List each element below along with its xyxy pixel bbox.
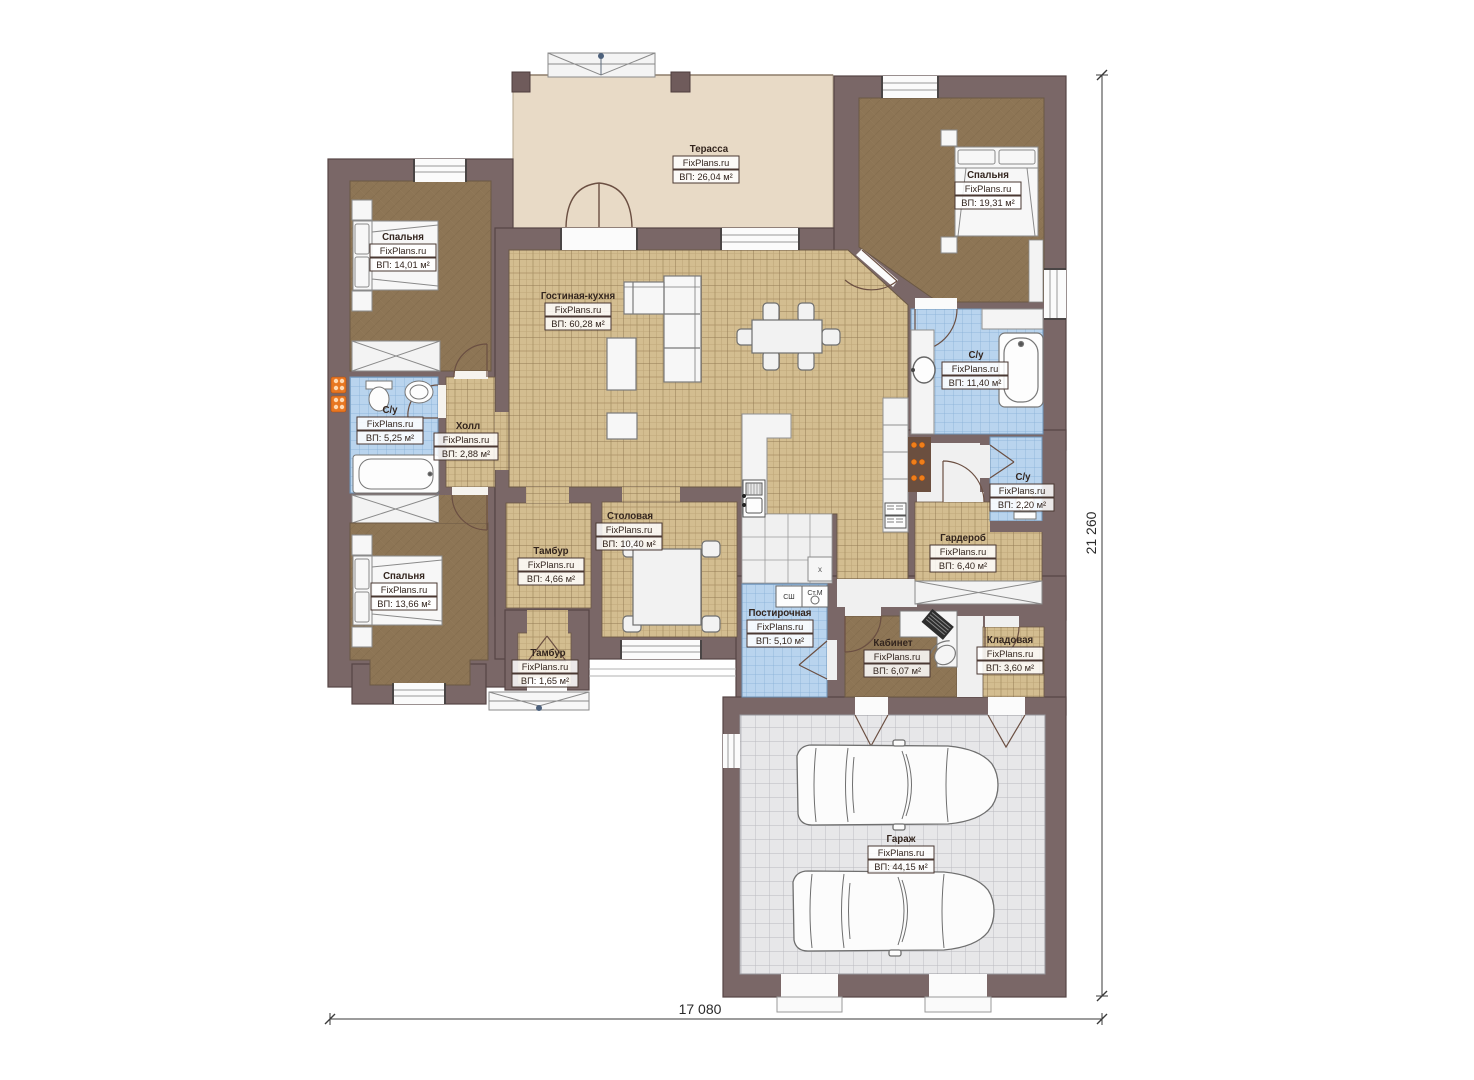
svg-text:FixPlans.ru: FixPlans.ru [555, 305, 602, 315]
svg-text:FixPlans.ru: FixPlans.ru [952, 364, 999, 374]
svg-text:FixPlans.ru: FixPlans.ru [367, 419, 414, 429]
svg-text:ВП: 4,66 м²: ВП: 4,66 м² [527, 574, 575, 584]
svg-text:ВП: 5,25 м²: ВП: 5,25 м² [366, 433, 414, 443]
svg-text:Спальня: Спальня [967, 170, 1009, 181]
svg-text:ВП: 3,60 м²: ВП: 3,60 м² [986, 663, 1034, 673]
svg-text:Гараж: Гараж [887, 834, 916, 845]
svg-text:ВП: 14,01 м²: ВП: 14,01 м² [376, 260, 429, 270]
svg-text:ВП: 5,10 м²: ВП: 5,10 м² [756, 636, 804, 646]
svg-text:Гостиная-кухня: Гостиная-кухня [541, 291, 615, 302]
svg-text:ВП: 6,40 м²: ВП: 6,40 м² [939, 561, 987, 571]
svg-text:FixPlans.ru: FixPlans.ru [878, 848, 925, 858]
svg-text:ВП: 6,07 м²: ВП: 6,07 м² [873, 666, 921, 676]
svg-text:Гардероб: Гардероб [940, 533, 986, 544]
svg-text:x: x [818, 565, 822, 574]
svg-text:СШ: СШ [783, 594, 794, 601]
svg-text:ВП: 2,88 м²: ВП: 2,88 м² [442, 449, 490, 459]
svg-text:FixPlans.ru: FixPlans.ru [999, 486, 1046, 496]
svg-text:ВП: 44,15 м²: ВП: 44,15 м² [874, 862, 927, 872]
svg-text:ВП: 26,04 м²: ВП: 26,04 м² [679, 172, 732, 182]
svg-text:FixPlans.ru: FixPlans.ru [965, 184, 1012, 194]
svg-text:С/у: С/у [1015, 472, 1031, 483]
svg-text:Терасса: Терасса [690, 144, 729, 155]
svg-text:ВП: 1,65 м²: ВП: 1,65 м² [521, 676, 569, 686]
svg-text:Кабинет: Кабинет [873, 638, 912, 649]
svg-text:FixPlans.ru: FixPlans.ru [443, 435, 490, 445]
svg-text:21 260: 21 260 [1083, 511, 1099, 554]
svg-text:Тамбур: Тамбур [533, 546, 568, 557]
svg-text:FixPlans.ru: FixPlans.ru [940, 547, 987, 557]
svg-text:ВП: 19,31 м²: ВП: 19,31 м² [961, 198, 1014, 208]
svg-text:Холл: Холл [456, 421, 480, 432]
svg-text:FixPlans.ru: FixPlans.ru [522, 662, 569, 672]
svg-text:Кладовая: Кладовая [987, 635, 1033, 646]
svg-text:С/у: С/у [968, 350, 984, 361]
svg-text:17 080: 17 080 [679, 1001, 722, 1017]
svg-text:С/у: С/у [382, 405, 398, 416]
svg-text:FixPlans.ru: FixPlans.ru [683, 158, 730, 168]
svg-text:Ст.М: Ст.М [807, 590, 822, 597]
svg-text:ВП: 2,20 м²: ВП: 2,20 м² [998, 500, 1046, 510]
svg-text:FixPlans.ru: FixPlans.ru [987, 649, 1034, 659]
svg-text:ВП: 11,40 м²: ВП: 11,40 м² [949, 378, 1002, 388]
svg-text:Столовая: Столовая [607, 511, 653, 522]
svg-text:Тамбур: Тамбур [530, 648, 565, 659]
svg-text:FixPlans.ru: FixPlans.ru [528, 560, 575, 570]
svg-text:FixPlans.ru: FixPlans.ru [380, 246, 427, 256]
svg-text:FixPlans.ru: FixPlans.ru [381, 585, 428, 595]
svg-text:ВП: 60,28 м²: ВП: 60,28 м² [551, 319, 604, 329]
svg-text:FixPlans.ru: FixPlans.ru [874, 652, 921, 662]
svg-text:ВП: 10,40 м²: ВП: 10,40 м² [602, 539, 655, 549]
svg-text:Постирочная: Постирочная [749, 608, 812, 619]
svg-text:FixPlans.ru: FixPlans.ru [757, 622, 804, 632]
svg-text:FixPlans.ru: FixPlans.ru [606, 525, 653, 535]
svg-text:Спальня: Спальня [383, 571, 425, 582]
svg-text:Спальня: Спальня [382, 232, 424, 243]
svg-text:ВП: 13,66 м²: ВП: 13,66 м² [377, 599, 430, 609]
